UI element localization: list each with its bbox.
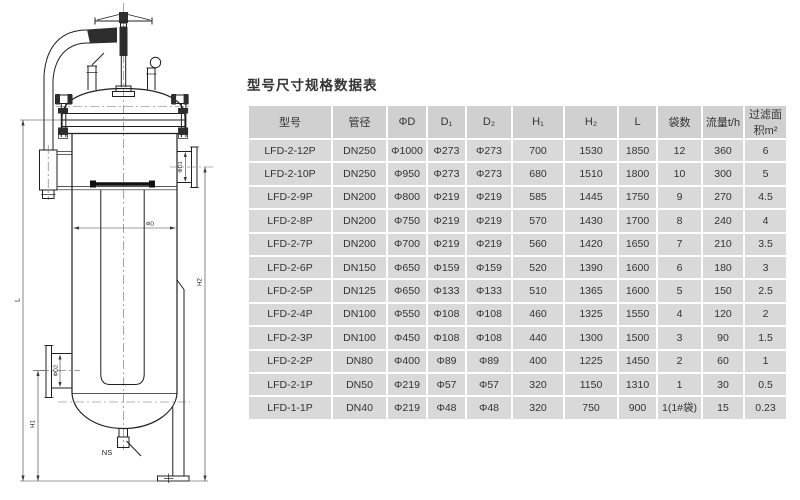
table-cell: Φ219: [467, 187, 511, 208]
table-cell: Φ550: [388, 304, 426, 325]
table-cell: Φ108: [428, 327, 465, 348]
table-cell: LFD-2-3P: [249, 327, 331, 348]
table-cell: 0.5: [745, 374, 786, 395]
table-cell: Φ219: [428, 187, 465, 208]
dimension-lines: L H1 H2 ΦD: [15, 120, 209, 481]
table-cell: 1530: [565, 140, 617, 161]
drain-label-ns: NS: [102, 448, 112, 457]
table-cell: Φ650: [388, 280, 426, 301]
table-cell: Φ400: [388, 351, 426, 372]
table-cell: Φ219: [428, 234, 465, 255]
column-header-flow: 流量t/h: [703, 106, 743, 138]
table-cell: 240: [703, 210, 743, 231]
column-header-d2: D₂: [467, 106, 511, 138]
table-cell: LFD-2-9P: [249, 187, 331, 208]
table-cell: 1800: [619, 163, 656, 184]
dim-label-l: L: [15, 298, 22, 302]
support-leg: [158, 280, 190, 483]
table-cell: 1600: [619, 257, 656, 278]
table-cell: Φ273: [428, 163, 465, 184]
table-cell: 520: [513, 257, 563, 278]
table-cell: Φ273: [428, 140, 465, 161]
table-cell: 440: [513, 327, 563, 348]
table-cell: 510: [513, 280, 563, 301]
table-cell: 60: [703, 351, 743, 372]
filter-vessel-drawing: ΦD1 ΦD2 NS: [0, 0, 240, 500]
table-cell: DN50: [333, 374, 386, 395]
table-row: LFD-2-7PDN200Φ700Φ219Φ219560142016507210…: [249, 234, 786, 255]
table-cell: 1300: [565, 327, 617, 348]
table-cell: DN200: [333, 234, 386, 255]
table-cell: Φ219: [428, 210, 465, 231]
table-row: LFD-2-3PDN100Φ450Φ108Φ108440130015003901…: [249, 327, 786, 348]
table-cell: Φ159: [428, 257, 465, 278]
header-row: 型号 管径 ΦD D₁ D₂ H₁ H₂ L 袋数 流量t/h 过滤面积m²: [249, 106, 786, 138]
table-row: LFD-2-5PDN125Φ650Φ133Φ133510136516005150…: [249, 280, 786, 301]
table-cell: LFD-2-10P: [249, 163, 331, 184]
table-cell: 1310: [619, 374, 656, 395]
table-cell: 570: [513, 210, 563, 231]
spec-panel: 型号尺寸规格数据表 型号 管径 ΦD D₁ D₂ H₁ H₂ L 袋数: [247, 74, 788, 421]
column-header-h2: H₂: [565, 106, 617, 138]
column-header-bags: 袋数: [658, 106, 701, 138]
column-header-d1: D₁: [428, 106, 465, 138]
table-cell: LFD-2-4P: [249, 304, 331, 325]
table-cell: 1.5: [745, 327, 786, 348]
table-cell: Φ700: [388, 234, 426, 255]
table-cell: 30: [703, 374, 743, 395]
table-cell: Φ89: [467, 351, 511, 372]
table-cell: Φ48: [467, 397, 511, 418]
table-row: LFD-2-9PDN200Φ800Φ219Φ219585144517509270…: [249, 187, 786, 208]
table-cell: 5: [658, 280, 701, 301]
table-row: LFD-2-8PDN200Φ750Φ219Φ219570143017008240…: [249, 210, 786, 231]
table-cell: 1450: [619, 351, 656, 372]
table-cell: 0.23: [745, 397, 786, 418]
table-cell: 2.5: [745, 280, 786, 301]
table-cell: Φ108: [467, 327, 511, 348]
table-cell: Φ950: [388, 163, 426, 184]
table-cell: Φ273: [467, 140, 511, 161]
table-cell: 180: [703, 257, 743, 278]
table-cell: 90: [703, 327, 743, 348]
table-cell: Φ108: [467, 304, 511, 325]
dim-label-phi-d: ΦD: [146, 222, 154, 228]
table-cell: 1600: [619, 280, 656, 301]
table-cell: Φ57: [467, 374, 511, 395]
column-header-model: 型号: [249, 106, 331, 138]
table-cell: Φ219: [388, 374, 426, 395]
filter-bag: [90, 181, 155, 385]
table-cell: Φ750: [388, 210, 426, 231]
vent-valve: [87, 53, 105, 90]
table-cell: 1500: [619, 327, 656, 348]
table-cell: 2: [658, 351, 701, 372]
table-cell: LFD-2-5P: [249, 280, 331, 301]
table-cell: 1430: [565, 210, 617, 231]
table-cell: Φ57: [428, 374, 465, 395]
table-cell: LFD-1-1P: [249, 397, 331, 418]
table-cell: 400: [513, 351, 563, 372]
table-cell: DN200: [333, 210, 386, 231]
column-header-h1: H₁: [513, 106, 563, 138]
table-cell: 15: [703, 397, 743, 418]
table-cell: LFD-2-8P: [249, 210, 331, 231]
table-cell: 5: [745, 163, 786, 184]
table-cell: 750: [565, 397, 617, 418]
table-cell: LFD-2-12P: [249, 140, 331, 161]
table-cell: 10: [658, 163, 701, 184]
spec-table-head: 型号 管径 ΦD D₁ D₂ H₁ H₂ L 袋数 流量t/h 过滤面积m²: [249, 106, 786, 138]
table-cell: 1: [658, 374, 701, 395]
table-cell: 1510: [565, 163, 617, 184]
table-cell: 460: [513, 304, 563, 325]
dim-label-phi-d2: ΦD2: [53, 365, 59, 376]
table-cell: 1: [745, 351, 786, 372]
table-cell: 585: [513, 187, 563, 208]
table-cell: 900: [619, 397, 656, 418]
table-cell: 4: [745, 210, 786, 231]
table-cell: DN125: [333, 280, 386, 301]
dim-label-h2: H2: [198, 278, 204, 286]
table-cell: 1325: [565, 304, 617, 325]
table-row: LFD-1-1PDN40Φ219Φ48Φ483207509001(1#袋)150…: [249, 397, 786, 418]
column-header-phid: ΦD: [388, 106, 426, 138]
table-cell: 1750: [619, 187, 656, 208]
table-cell: 700: [513, 140, 563, 161]
table-cell: 120: [703, 304, 743, 325]
table-cell: 6: [658, 257, 701, 278]
table-cell: Φ273: [467, 163, 511, 184]
table-cell: 6: [745, 140, 786, 161]
table-cell: 3: [745, 257, 786, 278]
table-cell: 360: [703, 140, 743, 161]
table-row: LFD-2-1PDN50Φ219Φ57Φ57320115013101300.5: [249, 374, 786, 395]
spec-table-body: LFD-2-12PDN250Φ1000Φ273Φ2737001530185012…: [249, 140, 786, 419]
table-cell: Φ219: [467, 210, 511, 231]
table-cell: DN80: [333, 351, 386, 372]
table-cell: LFD-2-7P: [249, 234, 331, 255]
column-header-pipe: 管径: [333, 106, 386, 138]
column-header-area: 过滤面积m²: [745, 106, 786, 138]
table-cell: Φ219: [467, 234, 511, 255]
table-cell: LFD-2-6P: [249, 257, 331, 278]
table-cell: LFD-2-1P: [249, 374, 331, 395]
table-cell: 3.5: [745, 234, 786, 255]
table-cell: Φ800: [388, 187, 426, 208]
table-cell: 1365: [565, 280, 617, 301]
table-cell: 2: [745, 304, 786, 325]
table-cell: 1650: [619, 234, 656, 255]
gauge-nozzle: [146, 57, 161, 90]
table-cell: 8: [658, 210, 701, 231]
table-cell: Φ159: [467, 257, 511, 278]
table-cell: LFD-2-2P: [249, 351, 331, 372]
table-cell: Φ133: [467, 280, 511, 301]
table-cell: 1445: [565, 187, 617, 208]
table-cell: DN100: [333, 304, 386, 325]
table-cell: Φ650: [388, 257, 426, 278]
table-cell: 1420: [565, 234, 617, 255]
table-cell: 1700: [619, 210, 656, 231]
table-cell: 4.5: [745, 187, 786, 208]
table-cell: DN100: [333, 327, 386, 348]
dim-label-phi-d1: ΦD1: [178, 161, 184, 172]
dim-label-h1: H1: [31, 420, 37, 428]
swing-clamp-right: [172, 94, 189, 139]
table-row: LFD-2-10PDN250Φ950Φ273Φ27368015101800103…: [249, 163, 786, 184]
table-row: LFD-2-4PDN100Φ550Φ108Φ108460132515504120…: [249, 304, 786, 325]
swing-clamp-left: [56, 94, 73, 139]
column-header-l: L: [619, 106, 656, 138]
table-cell: DN40: [333, 397, 386, 418]
table-cell: Φ133: [428, 280, 465, 301]
spec-table: 型号 管径 ΦD D₁ D₂ H₁ H₂ L 袋数 流量t/h 过滤面积m² L…: [247, 104, 788, 421]
table-cell: 1150: [565, 374, 617, 395]
table-cell: 210: [703, 234, 743, 255]
inlet-nozzle-d2: ΦD2: [40, 346, 80, 398]
table-cell: 9: [658, 187, 701, 208]
table-cell: 320: [513, 397, 563, 418]
table-cell: 7: [658, 234, 701, 255]
table-cell: 12: [658, 140, 701, 161]
table-cell: 560: [513, 234, 563, 255]
table-cell: 1(1#袋): [658, 397, 701, 418]
table-cell: Φ108: [428, 304, 465, 325]
table-cell: 3: [658, 327, 701, 348]
table-cell: 1390: [565, 257, 617, 278]
table-cell: 150: [703, 280, 743, 301]
table-cell: DN200: [333, 187, 386, 208]
table-cell: 1225: [565, 351, 617, 372]
page: ΦD1 ΦD2 NS: [0, 0, 800, 500]
table-cell: Φ1000: [388, 140, 426, 161]
table-title: 型号尺寸规格数据表: [247, 74, 788, 94]
table-cell: DN250: [333, 140, 386, 161]
table-cell: 1550: [619, 304, 656, 325]
table-cell: Φ450: [388, 327, 426, 348]
table-row: LFD-2-2PDN80Φ400Φ89Φ89400122514502601: [249, 351, 786, 372]
drain-valve: NS: [102, 429, 141, 458]
table-row: LFD-2-12PDN250Φ1000Φ273Φ2737001530185012…: [249, 140, 786, 161]
table-row: LFD-2-6PDN150Φ650Φ159Φ159520139016006180…: [249, 257, 786, 278]
table-cell: Φ89: [428, 351, 465, 372]
table-cell: 680: [513, 163, 563, 184]
table-cell: 4: [658, 304, 701, 325]
table-cell: 1850: [619, 140, 656, 161]
table-cell: DN150: [333, 257, 386, 278]
table-cell: DN250: [333, 163, 386, 184]
table-cell: Φ48: [428, 397, 465, 418]
table-cell: 300: [703, 163, 743, 184]
table-cell: Φ219: [388, 397, 426, 418]
table-cell: 320: [513, 374, 563, 395]
table-cell: 270: [703, 187, 743, 208]
